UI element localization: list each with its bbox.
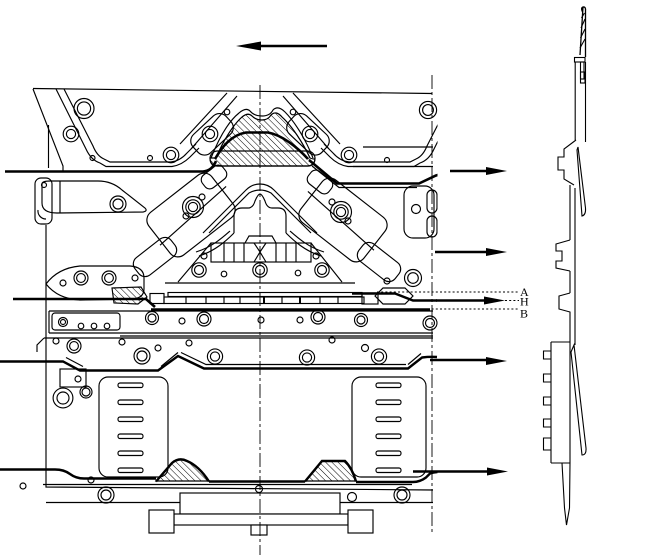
svg-text:B: B xyxy=(520,307,528,321)
